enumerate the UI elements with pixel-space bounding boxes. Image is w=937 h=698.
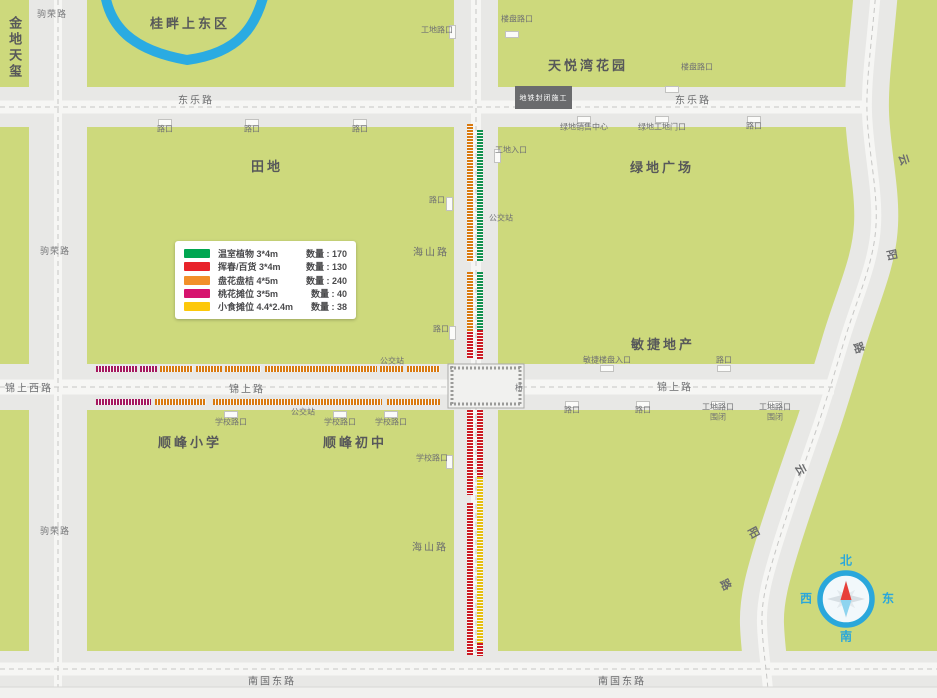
poi-label: 敏捷楼盘入口: [583, 357, 631, 366]
poi-label: 路口: [635, 407, 651, 416]
poi-label: 学校路口: [375, 419, 407, 428]
poi-label: 楼盘路口: [681, 64, 713, 73]
gate-mark: [717, 365, 731, 372]
area-label: 顺峰小学: [158, 436, 222, 450]
legend-item-name: 挥春/百货 3*4m: [218, 260, 281, 273]
stall-strip-orange: [160, 366, 193, 372]
area-label: 田地: [251, 160, 283, 174]
legend-row: 桃花摊位 3*5m数量 : 40: [184, 288, 347, 299]
legend-swatch: [184, 302, 210, 311]
road-name-label: 东乐路: [178, 96, 214, 107]
area-label: 天悦湾花园: [548, 59, 628, 73]
road-name-label: 锦上西路: [5, 384, 53, 395]
stall-strip-magenta: [96, 399, 151, 405]
compass-rose: [818, 571, 875, 628]
compass-label-east: 东: [882, 592, 894, 605]
legend-item-name: 桃花摊位 3*5m: [218, 287, 278, 300]
legend: 温室植物 3*4m数量 : 170挥春/百货 3*4m数量 : 130盘花盘桔 …: [175, 241, 356, 319]
poi-label: 工地路口: [759, 404, 791, 413]
poi-label: 公交站: [489, 215, 513, 224]
gate-mark: [446, 197, 453, 211]
poi-label: 工地路口: [702, 404, 734, 413]
road-name-label: 驹荣路: [40, 247, 70, 257]
legend-item-count: 数量 : 240: [306, 274, 347, 287]
compass-label-west: 西: [800, 592, 812, 605]
poi-label: 路口: [746, 123, 762, 132]
poi-label: 绿地工地门口: [638, 124, 686, 133]
area-label: 敏捷地产: [631, 338, 695, 352]
area-label: 金地天玺: [7, 16, 21, 80]
stall-strip-orange: [387, 399, 440, 405]
legend-swatch: [184, 262, 210, 271]
stall-strip-red: [467, 410, 473, 495]
road-name-label: 锦上路: [657, 383, 693, 394]
poi-label: 学校路口: [416, 455, 448, 464]
stall-strip-orange: [265, 366, 377, 372]
poi-label: 路口: [716, 357, 732, 366]
legend-swatch: [184, 276, 210, 285]
stall-strip-orange: [467, 272, 473, 332]
road-name-label: 东乐路: [675, 96, 711, 107]
stall-strip-orange: [213, 399, 382, 405]
stall-strip-red: [477, 410, 483, 477]
poi-label: 路口: [429, 197, 445, 206]
legend-item-name: 温室植物 3*4m: [218, 247, 278, 260]
stall-strip-yellow: [477, 477, 483, 643]
poi-label: 学校路口: [215, 419, 247, 428]
stall-strip-green: [477, 272, 483, 330]
stall-strip-magenta: [140, 366, 157, 372]
road-name-label: 南国东路: [248, 677, 296, 688]
legend-item-count: 数量 : 38: [311, 300, 347, 313]
road-name-label: 驹荣路: [37, 10, 67, 20]
road-name-label: 驹荣路: [40, 527, 70, 537]
poi-label: 绿地销售中心: [560, 124, 608, 133]
area-label: 桂畔上东区: [150, 17, 230, 31]
compass-label-north: 北: [840, 554, 852, 567]
legend-row: 盘花盘桔 4*5m数量 : 240: [184, 275, 347, 286]
map-bottom-margin: [0, 687, 937, 698]
gate-mark: [665, 86, 679, 93]
poi-label: 路口: [433, 326, 449, 335]
legend-row: 挥春/百货 3*4m数量 : 130: [184, 261, 347, 272]
stall-strip-red: [477, 330, 483, 359]
poi-label: 工地入口: [495, 147, 527, 156]
legend-item-count: 数量 : 130: [306, 260, 347, 273]
poi-label: 学校路口: [324, 419, 356, 428]
poi-label: 围闭: [710, 414, 726, 423]
stall-strip-red: [467, 332, 473, 359]
stall-strip-orange: [407, 366, 440, 372]
stall-strip-orange: [155, 399, 206, 405]
poi-label: 桥: [515, 385, 523, 394]
legend-row: 小食摊位 4.4*2.4m数量 : 38: [184, 301, 347, 312]
festival-stall-map: 地铁封闭施工 温室植物 3*4m数量 : 170挥春/百货 3*4m数量 : 1…: [0, 0, 937, 698]
compass-label-south: 南: [840, 630, 852, 643]
poi-label: 路口: [564, 407, 580, 416]
legend-swatch: [184, 289, 210, 298]
road-name-label: 海山路: [413, 248, 449, 259]
road-name-label: 南国东路: [598, 677, 646, 688]
poi-label: 围闭: [767, 414, 783, 423]
road-name-label: 锦上路: [229, 385, 265, 396]
central-intersection-square: [448, 364, 524, 408]
stall-strip-orange: [380, 366, 403, 372]
road-name-label: 海山路: [412, 543, 448, 554]
stall-strip-orange: [225, 366, 261, 372]
legend-item-name: 小食摊位 4.4*2.4m: [218, 300, 293, 313]
stall-strip-orange: [467, 124, 473, 262]
legend-item-count: 数量 : 40: [311, 287, 347, 300]
legend-row: 温室植物 3*4m数量 : 170: [184, 248, 347, 259]
area-label: 顺峰初中: [323, 436, 387, 450]
stall-strip-red: [477, 643, 483, 656]
stall-strip-red: [467, 503, 473, 655]
stall-strip-magenta: [96, 366, 137, 372]
poi-label: 公交站: [380, 358, 404, 367]
poi-label: 路口: [244, 126, 260, 135]
poi-label: 楼盘路口: [501, 16, 533, 25]
poi-label: 路口: [157, 126, 173, 135]
legend-item-count: 数量 : 170: [306, 247, 347, 260]
gate-mark: [505, 31, 519, 38]
poi-label: 公交站: [291, 409, 315, 418]
stall-strip-orange: [196, 366, 222, 372]
area-label: 绿地广场: [630, 161, 694, 175]
gate-mark: [600, 365, 614, 372]
stall-strip-green: [477, 130, 483, 262]
legend-item-name: 盘花盘桔 4*5m: [218, 274, 278, 287]
poi-label: 工地路口: [421, 27, 453, 36]
poi-label: 路口: [352, 126, 368, 135]
subway-construction-sign: 地铁封闭施工: [515, 86, 572, 109]
gate-mark: [449, 326, 456, 340]
legend-swatch: [184, 249, 210, 258]
